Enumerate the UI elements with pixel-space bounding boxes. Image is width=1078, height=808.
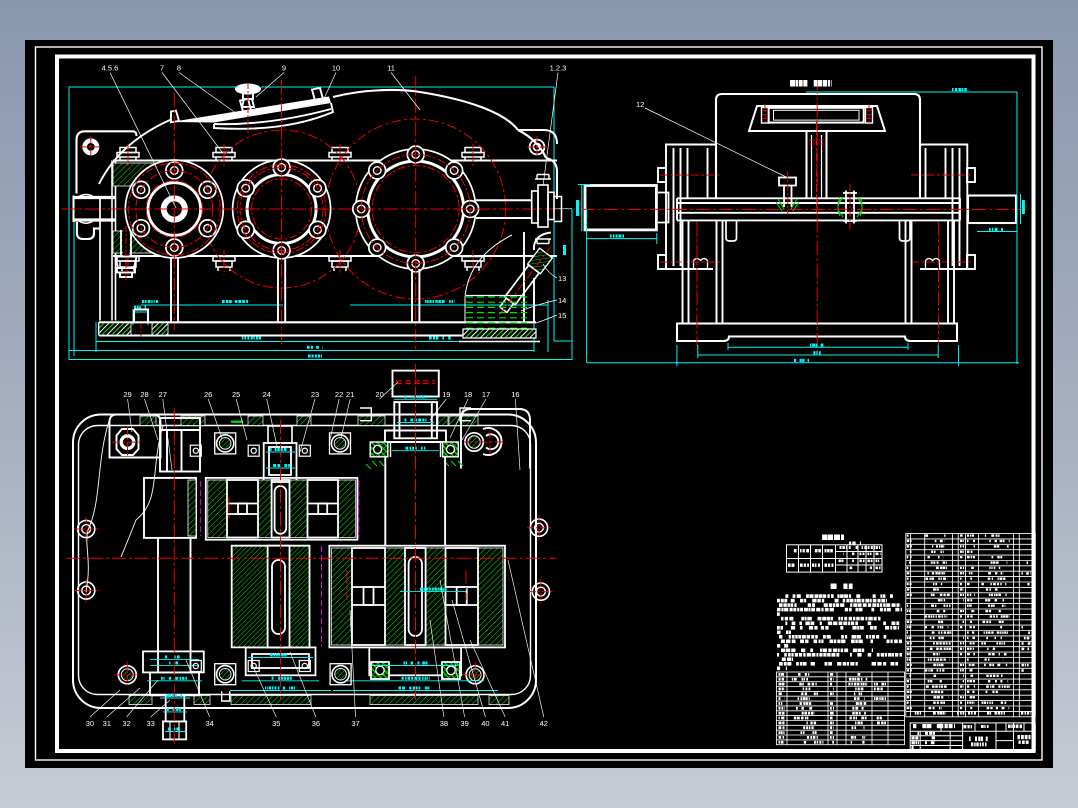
svg-text:37: 37: [351, 719, 359, 728]
svg-text:41: 41: [501, 719, 509, 728]
svg-text:27: 27: [159, 390, 167, 399]
svg-text:32: 32: [122, 719, 130, 728]
svg-text:34: 34: [206, 719, 214, 728]
svg-text:12: 12: [636, 100, 644, 109]
svg-text:9: 9: [282, 64, 286, 73]
svg-text:16: 16: [511, 390, 519, 399]
svg-text:39: 39: [460, 719, 468, 728]
svg-text:8: 8: [177, 64, 181, 73]
svg-text:30: 30: [86, 719, 94, 728]
svg-text:24: 24: [263, 390, 271, 399]
svg-text:22: 22: [335, 390, 343, 399]
svg-text:25: 25: [232, 390, 240, 399]
svg-text:40: 40: [481, 719, 489, 728]
svg-text:35: 35: [272, 719, 280, 728]
svg-text:28: 28: [140, 390, 148, 399]
svg-text:4.5.6: 4.5.6: [102, 64, 119, 73]
svg-text:23: 23: [311, 390, 319, 399]
svg-text:29: 29: [123, 390, 131, 399]
svg-text:21: 21: [346, 390, 354, 399]
svg-text:31: 31: [103, 719, 111, 728]
svg-text:11: 11: [387, 64, 395, 73]
svg-text:15: 15: [558, 311, 566, 320]
svg-text:26: 26: [204, 390, 212, 399]
svg-text:13: 13: [558, 274, 566, 283]
svg-text:10: 10: [332, 64, 340, 73]
svg-text:7: 7: [160, 64, 164, 73]
svg-text:20: 20: [375, 390, 383, 399]
svg-text:33: 33: [147, 719, 155, 728]
svg-text:42: 42: [540, 719, 548, 728]
svg-text:1.2.3: 1.2.3: [550, 64, 567, 73]
svg-text:36: 36: [312, 719, 320, 728]
svg-text:19: 19: [442, 390, 450, 399]
svg-text:14: 14: [558, 296, 566, 305]
svg-text:18: 18: [464, 390, 472, 399]
svg-text:17: 17: [482, 390, 490, 399]
svg-text:38: 38: [440, 719, 448, 728]
